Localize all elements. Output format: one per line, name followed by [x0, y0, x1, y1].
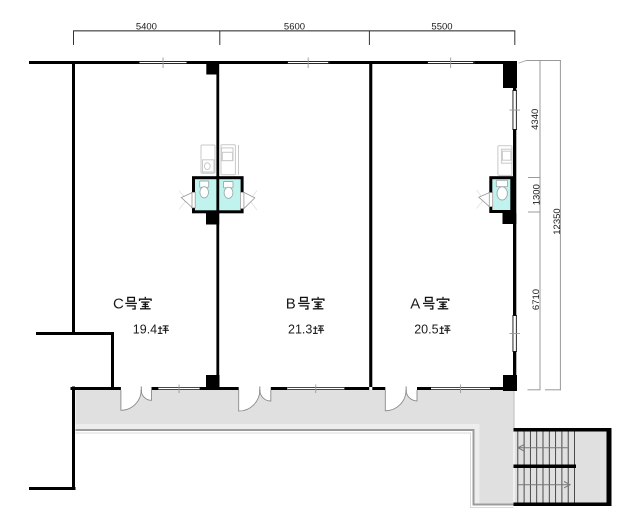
svg-text:A: A	[410, 296, 420, 313]
svg-text:19.4: 19.4	[133, 322, 157, 336]
svg-text:21.3: 21.3	[288, 322, 312, 336]
svg-text:5400: 5400	[136, 21, 157, 32]
svg-text:1300: 1300	[531, 184, 542, 205]
svg-text:4340: 4340	[530, 109, 541, 130]
svg-text:C: C	[113, 296, 124, 313]
svg-text:5600: 5600	[284, 21, 305, 32]
svg-text:12350: 12350	[552, 208, 563, 234]
svg-text:5500: 5500	[431, 21, 452, 32]
svg-text:6710: 6710	[531, 289, 542, 310]
svg-text:B: B	[286, 296, 296, 313]
svg-text:20.5: 20.5	[414, 322, 438, 336]
